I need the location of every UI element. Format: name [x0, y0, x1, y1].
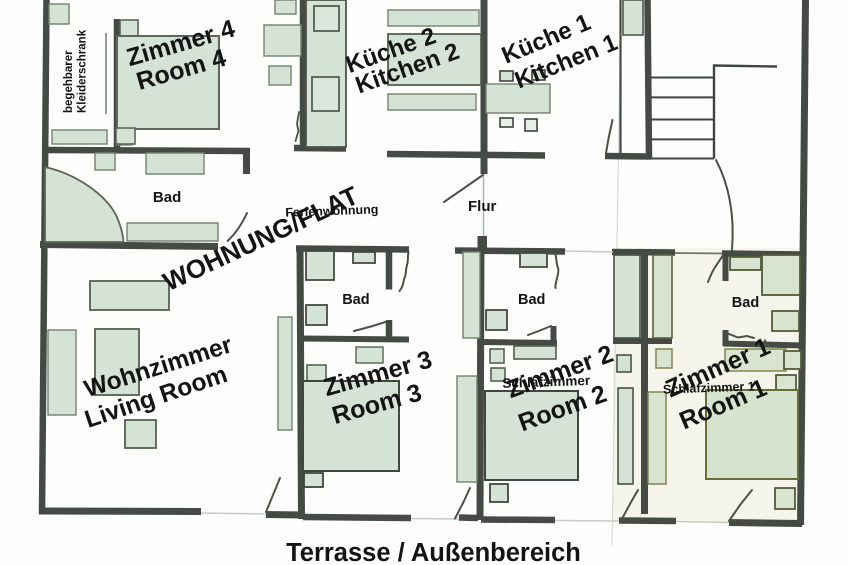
svg-text:Kleiderschrank: Kleiderschrank [77, 29, 89, 113]
svg-text:Bad: Bad [518, 292, 545, 308]
svg-text:Flur: Flur [468, 198, 496, 215]
svg-text:Bad: Bad [342, 292, 369, 308]
svg-text:Bad: Bad [732, 295, 759, 311]
svg-text:Terrasse / Außenbereich: Terrasse / Außenbereich [286, 539, 581, 565]
svg-text:begehbarer: begehbarer [63, 50, 75, 113]
svg-text:Bad: Bad [153, 189, 181, 206]
